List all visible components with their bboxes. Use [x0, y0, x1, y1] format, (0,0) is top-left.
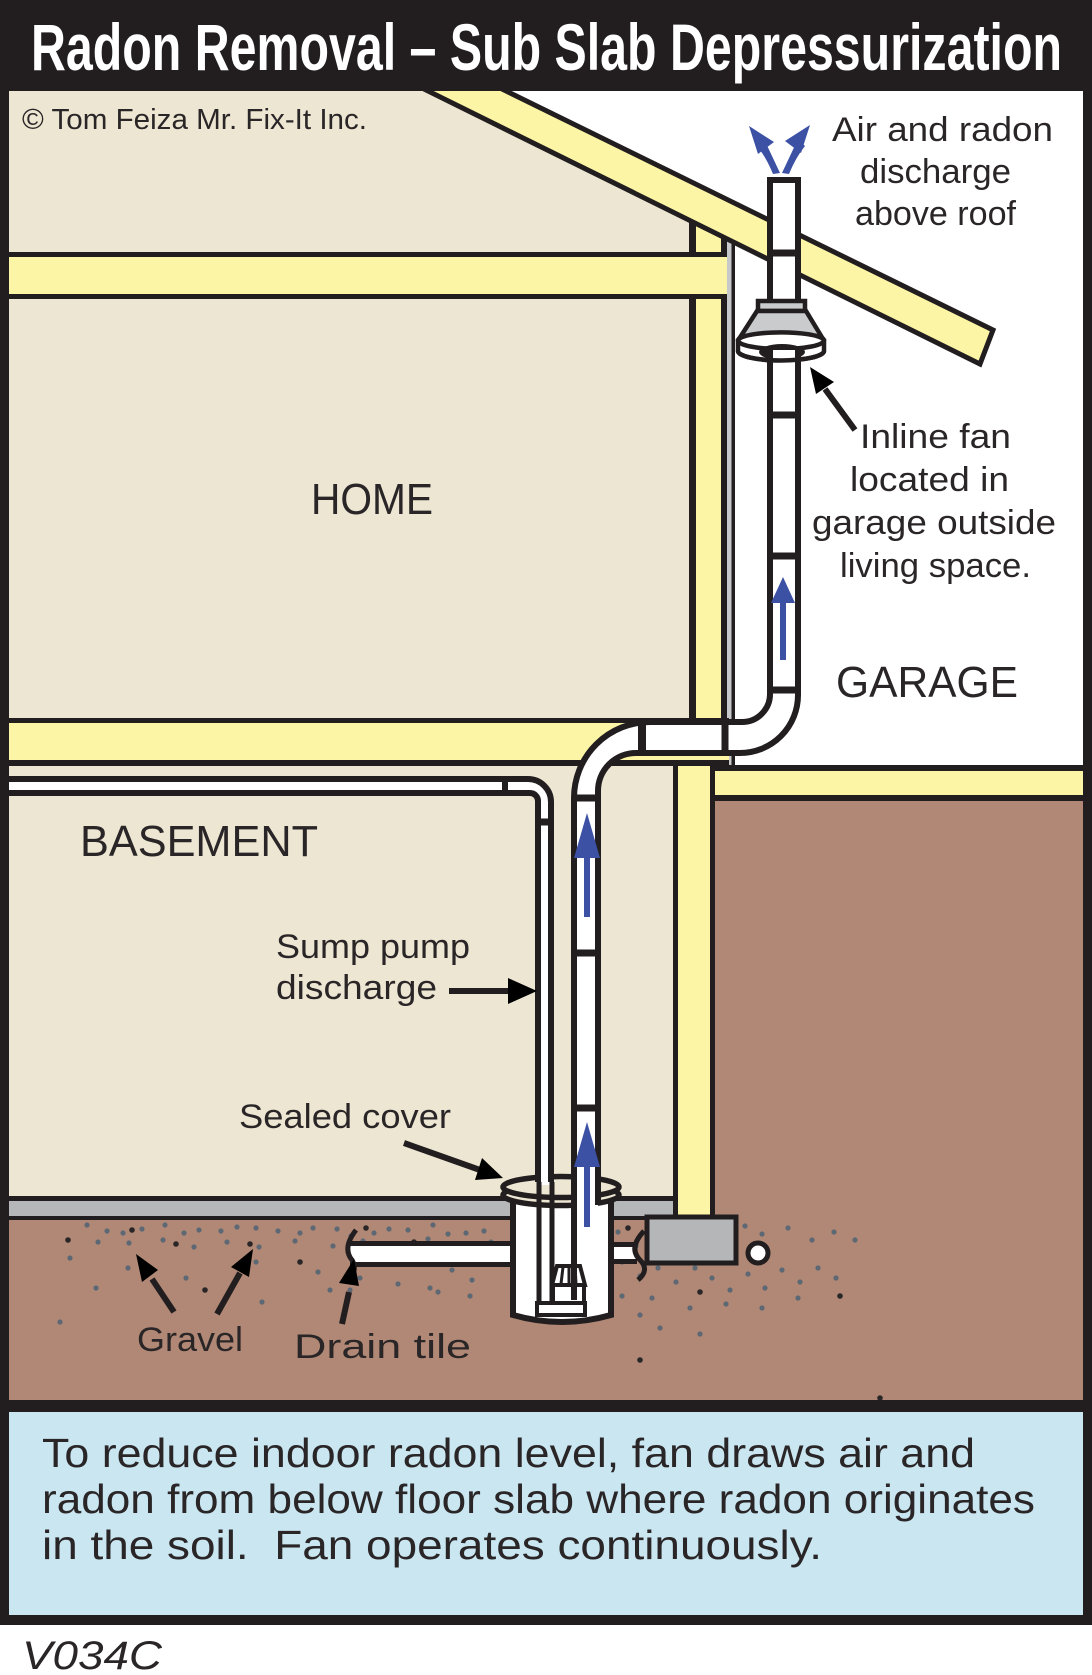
svg-text:located in: located in	[850, 461, 1009, 499]
svg-text:discharge: discharge	[860, 153, 1011, 191]
svg-text:GARAGE: GARAGE	[836, 658, 1018, 707]
svg-text:Sump pump: Sump pump	[276, 928, 470, 966]
svg-text:Radon Removal – Sub Slab Depre: Radon Removal – Sub Slab Depressurizatio…	[31, 10, 1062, 84]
svg-text:discharge: discharge	[276, 969, 437, 1007]
svg-text:To reduce indoor radon level,: To reduce indoor radon level, fan draws …	[42, 1430, 975, 1476]
svg-text:© Tom Feiza Mr. Fix-It Inc.: © Tom Feiza Mr. Fix-It Inc.	[22, 104, 367, 136]
svg-text:living space.: living space.	[840, 547, 1031, 585]
svg-text:in the soil. Fan operates con: in the soil. Fan operates continuously.	[42, 1522, 822, 1568]
svg-text:V034C: V034C	[22, 1634, 163, 1675]
svg-text:BASEMENT: BASEMENT	[80, 817, 318, 866]
svg-text:radon from below floor slab wh: radon from below floor slab where radon …	[42, 1476, 1035, 1522]
svg-text:Air and radon: Air and radon	[832, 111, 1053, 149]
svg-text:HOME: HOME	[311, 475, 433, 524]
svg-text:garage outside: garage outside	[812, 504, 1056, 542]
svg-text:Sealed cover: Sealed cover	[239, 1098, 451, 1136]
svg-text:above roof: above roof	[855, 195, 1017, 233]
svg-text:Gravel: Gravel	[137, 1321, 243, 1359]
svg-text:Drain tile: Drain tile	[294, 1328, 471, 1366]
svg-text:Inline fan: Inline fan	[860, 418, 1011, 456]
